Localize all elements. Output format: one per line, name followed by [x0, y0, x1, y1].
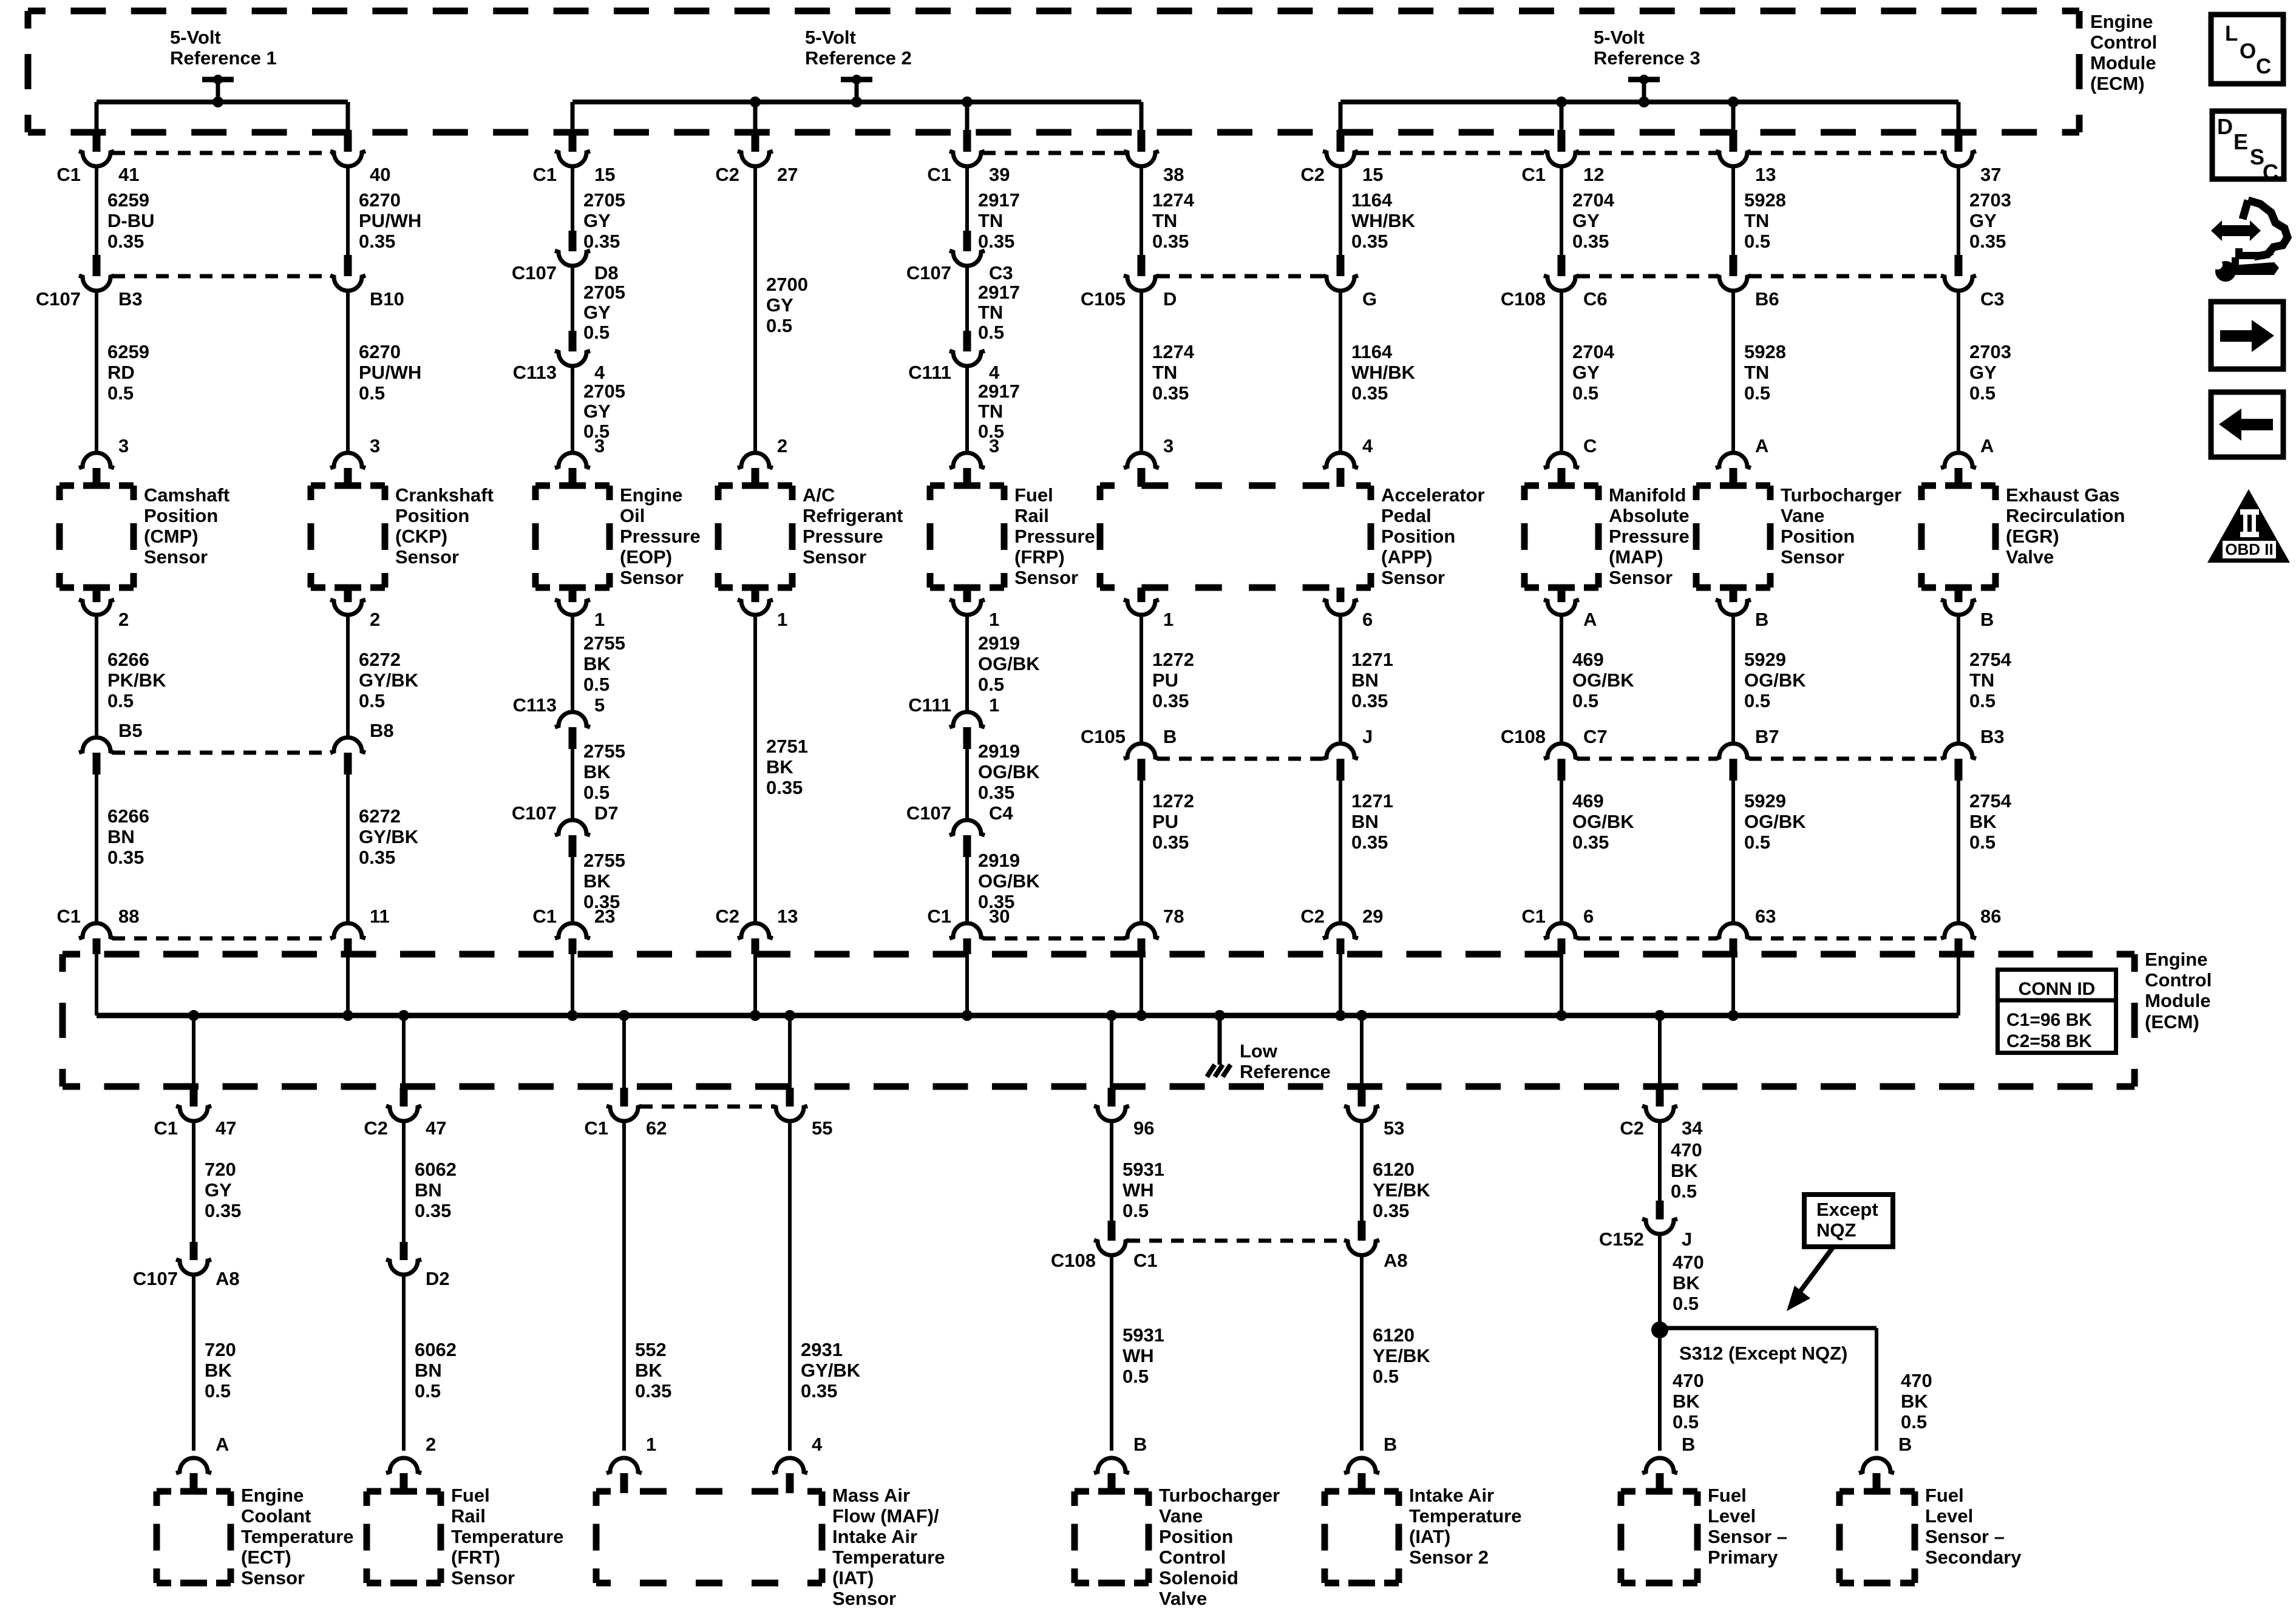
svg-text:6270: 6270: [359, 189, 401, 211]
svg-text:4: 4: [812, 1434, 823, 1455]
svg-text:0.35: 0.35: [1351, 231, 1388, 252]
svg-text:2755: 2755: [583, 632, 625, 654]
svg-text:C1: C1: [584, 1117, 608, 1139]
svg-text:BK: BK: [1901, 1391, 1928, 1412]
svg-text:GY/BK: GY/BK: [801, 1360, 861, 1381]
svg-text:C2: C2: [1300, 906, 1325, 927]
svg-text:C4: C4: [989, 802, 1013, 824]
svg-text:0.35: 0.35: [107, 231, 144, 252]
svg-text:0.35: 0.35: [978, 231, 1014, 252]
svg-text:J: J: [1682, 1229, 1692, 1250]
svg-text:720: 720: [205, 1159, 236, 1180]
svg-text:D7: D7: [594, 802, 619, 824]
svg-text:Control: Control: [2090, 32, 2157, 53]
svg-text:A: A: [1583, 609, 1597, 630]
svg-text:552: 552: [635, 1339, 667, 1360]
svg-text:0.5: 0.5: [1969, 690, 1995, 711]
svg-text:C2: C2: [1620, 1117, 1644, 1139]
svg-text:S312 (Except NQZ): S312 (Except NQZ): [1679, 1343, 1847, 1364]
svg-text:470: 470: [1671, 1139, 1702, 1161]
svg-text:5929: 5929: [1744, 649, 1786, 670]
svg-text:39: 39: [989, 164, 1010, 185]
svg-text:C152: C152: [1599, 1229, 1644, 1250]
svg-text:2: 2: [777, 435, 787, 456]
svg-text:5-Volt: 5-Volt: [170, 27, 221, 48]
svg-text:C107: C107: [906, 802, 951, 824]
svg-text:Sensor –: Sensor –: [1708, 1526, 1787, 1547]
svg-text:D: D: [1163, 288, 1177, 310]
svg-text:C113: C113: [513, 362, 557, 383]
svg-text:C1: C1: [532, 906, 557, 927]
svg-text:Turbocharger: Turbocharger: [1781, 484, 1901, 506]
svg-text:Sensor –: Sensor –: [1925, 1526, 2005, 1547]
svg-text:0.35: 0.35: [1572, 231, 1609, 252]
svg-text:C1: C1: [56, 906, 81, 927]
svg-text:Intake Air: Intake Air: [1409, 1485, 1494, 1506]
svg-text:2704: 2704: [1572, 341, 1615, 362]
svg-text:6270: 6270: [359, 341, 401, 362]
svg-text:2751: 2751: [766, 736, 808, 757]
svg-text:C108: C108: [1501, 726, 1546, 747]
svg-text:0.5: 0.5: [1373, 1366, 1399, 1387]
svg-text:Engine: Engine: [2090, 11, 2153, 32]
svg-text:3: 3: [989, 435, 999, 456]
svg-text:C7: C7: [1583, 726, 1608, 747]
svg-text:2931: 2931: [801, 1339, 843, 1360]
svg-text:B8: B8: [370, 720, 394, 741]
svg-text:3: 3: [118, 435, 129, 456]
svg-text:1164: 1164: [1351, 341, 1393, 362]
svg-text:Vane: Vane: [1159, 1505, 1203, 1527]
svg-text:Sensor: Sensor: [144, 546, 208, 568]
svg-text:A/C: A/C: [803, 484, 835, 506]
svg-text:B: B: [1898, 1434, 1912, 1455]
svg-text:0.35: 0.35: [766, 777, 803, 798]
svg-text:TN: TN: [1969, 670, 1994, 691]
svg-text:Valve: Valve: [2006, 546, 2054, 568]
svg-text:29: 29: [1362, 906, 1383, 927]
svg-text:0.35: 0.35: [359, 847, 395, 868]
svg-text:2703: 2703: [1969, 341, 2011, 362]
svg-text:C108: C108: [1501, 288, 1546, 310]
svg-text:Mass Air: Mass Air: [832, 1485, 910, 1506]
svg-text:C107: C107: [512, 262, 557, 283]
svg-text:0.5: 0.5: [1744, 382, 1770, 404]
svg-text:Solenoid: Solenoid: [1159, 1567, 1238, 1588]
svg-text:PK/BK: PK/BK: [107, 670, 166, 691]
svg-text:0.5: 0.5: [1744, 690, 1770, 711]
svg-text:B7: B7: [1755, 726, 1779, 747]
svg-text:4: 4: [989, 362, 1000, 383]
svg-text:2: 2: [118, 609, 129, 630]
svg-text:2700: 2700: [766, 274, 808, 295]
svg-text:5-Volt: 5-Volt: [1594, 27, 1645, 48]
svg-text:4: 4: [1362, 435, 1373, 456]
svg-text:470: 470: [1673, 1370, 1704, 1391]
svg-text:Level: Level: [1708, 1505, 1756, 1527]
svg-text:Sensor: Sensor: [1609, 567, 1673, 588]
svg-text:469: 469: [1572, 649, 1604, 670]
svg-text:Reference: Reference: [1240, 1061, 1331, 1082]
svg-text:Secondary: Secondary: [1925, 1547, 2022, 1568]
svg-text:(IAT): (IAT): [832, 1567, 874, 1588]
svg-text:0.35: 0.35: [1152, 832, 1189, 853]
svg-text:0.35: 0.35: [107, 847, 144, 868]
svg-text:30: 30: [989, 906, 1010, 927]
svg-text:0.5: 0.5: [1673, 1411, 1699, 1432]
svg-text:5931: 5931: [1123, 1324, 1164, 1346]
svg-text:D-BU: D-BU: [107, 210, 155, 231]
svg-text:Refrigerant: Refrigerant: [803, 505, 903, 526]
svg-text:1272: 1272: [1152, 790, 1194, 812]
svg-text:B: B: [1980, 609, 1994, 630]
svg-text:BK: BK: [1969, 811, 1997, 832]
svg-text:6: 6: [1583, 906, 1594, 927]
svg-text:Recirculation: Recirculation: [2006, 505, 2125, 526]
svg-text:C3: C3: [989, 262, 1013, 283]
svg-text:1: 1: [777, 609, 787, 630]
svg-text:C: C: [2263, 160, 2278, 185]
svg-text:(FRP): (FRP): [1014, 546, 1065, 568]
svg-text:Temperature: Temperature: [451, 1526, 564, 1547]
svg-text:(CKP): (CKP): [395, 526, 447, 547]
svg-text:Sensor: Sensor: [1014, 567, 1078, 588]
svg-text:0.35: 0.35: [1152, 231, 1189, 252]
svg-text:Pressure: Pressure: [1609, 526, 1690, 547]
svg-text:Temperature: Temperature: [832, 1547, 945, 1568]
svg-text:0.5: 0.5: [359, 382, 385, 404]
svg-text:5: 5: [594, 694, 605, 716]
svg-text:C1: C1: [927, 164, 951, 185]
svg-text:0.5: 0.5: [1671, 1181, 1697, 1202]
svg-text:2917: 2917: [978, 282, 1020, 303]
svg-text:G: G: [1362, 288, 1377, 310]
svg-text:Position: Position: [1781, 526, 1855, 547]
svg-text:Pressure: Pressure: [620, 526, 701, 547]
svg-text:1164: 1164: [1351, 189, 1393, 211]
svg-text:BK: BK: [1671, 1160, 1698, 1181]
svg-text:C2=58 BK: C2=58 BK: [2006, 1031, 2092, 1051]
svg-text:0.35: 0.35: [1351, 690, 1388, 711]
svg-text:0.5: 0.5: [583, 322, 610, 343]
svg-text:1: 1: [646, 1434, 656, 1455]
svg-text:C111: C111: [908, 694, 951, 716]
svg-text:C6: C6: [1583, 288, 1608, 310]
svg-text:720: 720: [205, 1339, 236, 1360]
svg-text:2: 2: [426, 1434, 436, 1455]
svg-text:Sensor: Sensor: [620, 567, 684, 588]
svg-text:1: 1: [594, 609, 605, 630]
svg-text:Pressure: Pressure: [1014, 526, 1095, 547]
svg-text:PU/WH: PU/WH: [359, 362, 421, 383]
svg-text:Fuel: Fuel: [1014, 484, 1053, 506]
svg-text:BK: BK: [635, 1360, 662, 1381]
svg-text:B10: B10: [370, 288, 404, 310]
svg-text:C107: C107: [906, 262, 951, 283]
svg-text:C113: C113: [513, 694, 557, 716]
svg-text:Pedal: Pedal: [1381, 505, 1432, 526]
svg-text:TN: TN: [978, 210, 1003, 231]
svg-text:O: O: [2240, 39, 2256, 63]
svg-text:B5: B5: [118, 720, 143, 741]
svg-text:0.5: 0.5: [359, 690, 385, 711]
svg-text:13: 13: [777, 906, 798, 927]
svg-text:0.35: 0.35: [583, 231, 620, 252]
svg-text:34: 34: [1682, 1117, 1703, 1139]
svg-text:BK: BK: [583, 761, 611, 782]
svg-text:0.5: 0.5: [1572, 690, 1598, 711]
svg-text:TN: TN: [1152, 210, 1177, 231]
svg-text:40: 40: [370, 164, 390, 185]
svg-text:5928: 5928: [1744, 189, 1786, 211]
svg-text:Control: Control: [1159, 1547, 1226, 1568]
svg-text:C111: C111: [908, 362, 951, 383]
svg-text:0.5: 0.5: [1744, 832, 1770, 853]
svg-text:Absolute: Absolute: [1609, 505, 1690, 526]
svg-text:BN: BN: [415, 1179, 442, 1201]
svg-text:0.5: 0.5: [1572, 382, 1598, 404]
svg-text:27: 27: [777, 164, 798, 185]
svg-text:Module: Module: [2145, 990, 2211, 1011]
svg-text:OG/BK: OG/BK: [978, 761, 1040, 782]
svg-text:TN: TN: [1744, 210, 1769, 231]
svg-text:C105: C105: [1081, 288, 1126, 310]
svg-text:Flow (MAF)/: Flow (MAF)/: [832, 1505, 939, 1527]
svg-text:2705: 2705: [583, 282, 625, 303]
svg-text:BN: BN: [1351, 811, 1379, 832]
svg-text:Crankshaft: Crankshaft: [395, 484, 494, 506]
svg-text:0.35: 0.35: [801, 1380, 837, 1402]
svg-text:BN: BN: [415, 1360, 442, 1381]
svg-text:GY/BK: GY/BK: [359, 670, 419, 691]
svg-text:2755: 2755: [583, 850, 625, 871]
svg-text:L: L: [2225, 22, 2238, 46]
svg-text:Control: Control: [2145, 969, 2212, 991]
svg-text:WH/BK: WH/BK: [1351, 362, 1416, 383]
svg-text:Manifold: Manifold: [1609, 484, 1686, 506]
svg-text:5928: 5928: [1744, 341, 1786, 362]
svg-text:6120: 6120: [1373, 1324, 1415, 1346]
svg-text:BK: BK: [1673, 1272, 1700, 1293]
svg-text:GY/BK: GY/BK: [359, 826, 419, 847]
svg-text:0.35: 0.35: [415, 1200, 451, 1221]
svg-text:Sensor: Sensor: [832, 1588, 896, 1609]
svg-text:Module: Module: [2090, 52, 2156, 73]
svg-text:Level: Level: [1925, 1505, 1973, 1527]
svg-text:BK: BK: [766, 756, 793, 778]
svg-text:Accelerator: Accelerator: [1381, 484, 1485, 506]
svg-text:6062: 6062: [415, 1159, 457, 1180]
svg-text:15: 15: [594, 164, 615, 185]
svg-text:96: 96: [1133, 1117, 1154, 1139]
svg-text:(FRT): (FRT): [451, 1547, 500, 1568]
svg-text:55: 55: [812, 1117, 832, 1139]
svg-text:OBD II: OBD II: [2225, 540, 2273, 558]
svg-text:47: 47: [426, 1117, 446, 1139]
svg-text:Oil: Oil: [620, 505, 645, 526]
svg-text:1274: 1274: [1152, 189, 1195, 211]
svg-text:2755: 2755: [583, 741, 625, 762]
svg-text:1274: 1274: [1152, 341, 1195, 362]
svg-text:0.5: 0.5: [978, 674, 1004, 695]
svg-text:2919: 2919: [978, 850, 1020, 871]
svg-text:0.5: 0.5: [205, 1380, 231, 1402]
svg-text:(MAP): (MAP): [1609, 546, 1663, 568]
svg-text:C1=96 BK: C1=96 BK: [2006, 1010, 2092, 1030]
svg-text:(IAT): (IAT): [1409, 1526, 1450, 1547]
svg-text:0.5: 0.5: [1744, 231, 1770, 252]
svg-text:D: D: [2217, 114, 2233, 139]
svg-text:WH/BK: WH/BK: [1351, 210, 1416, 231]
svg-text:CONN ID: CONN ID: [2019, 979, 2096, 999]
svg-text:15: 15: [1362, 164, 1383, 185]
svg-text:0.5: 0.5: [415, 1380, 441, 1402]
svg-text:6266: 6266: [107, 805, 149, 827]
svg-text:A: A: [216, 1434, 229, 1455]
svg-text:0.35: 0.35: [359, 231, 395, 252]
svg-text:37: 37: [1980, 164, 2001, 185]
svg-text:BK: BK: [583, 870, 611, 892]
svg-text:E: E: [2233, 129, 2248, 154]
svg-text:1: 1: [1163, 609, 1173, 630]
svg-text:2917: 2917: [978, 189, 1020, 211]
svg-text:0.35: 0.35: [978, 782, 1014, 803]
svg-text:Reference 2: Reference 2: [805, 47, 912, 69]
svg-text:Camshaft: Camshaft: [144, 484, 229, 506]
svg-text:Fuel: Fuel: [1708, 1485, 1747, 1506]
svg-text:WH: WH: [1123, 1345, 1154, 1366]
svg-text:13: 13: [1755, 164, 1776, 185]
svg-text:6: 6: [1362, 609, 1373, 630]
svg-text:5929: 5929: [1744, 790, 1786, 812]
svg-text:3: 3: [370, 435, 380, 456]
svg-text:Primary: Primary: [1708, 1547, 1778, 1568]
svg-text:4: 4: [594, 362, 605, 383]
svg-text:0.35: 0.35: [1572, 832, 1609, 853]
svg-text:(EGR): (EGR): [2006, 526, 2059, 547]
svg-text:GY: GY: [1572, 362, 1600, 383]
svg-text:2705: 2705: [583, 381, 625, 402]
svg-text:Position: Position: [1381, 526, 1455, 547]
svg-text:B3: B3: [1980, 726, 2005, 747]
svg-text:TN: TN: [978, 401, 1003, 422]
svg-text:GY: GY: [583, 302, 611, 323]
svg-text:A: A: [1755, 435, 1768, 456]
svg-text:0.5: 0.5: [107, 690, 134, 711]
svg-text:C1: C1: [56, 164, 81, 185]
svg-text:1271: 1271: [1351, 790, 1393, 812]
svg-text:2919: 2919: [978, 741, 1020, 762]
svg-text:A8: A8: [1384, 1250, 1408, 1271]
svg-text:A8: A8: [216, 1268, 240, 1289]
svg-text:1: 1: [989, 694, 999, 716]
svg-text:BN: BN: [107, 826, 135, 847]
svg-text:0.5: 0.5: [583, 674, 610, 695]
svg-text:6062: 6062: [415, 1339, 457, 1360]
svg-text:YE/BK: YE/BK: [1373, 1345, 1430, 1366]
svg-text:2704: 2704: [1572, 189, 1615, 211]
svg-text:TN: TN: [1152, 362, 1177, 383]
svg-text:Sensor: Sensor: [1781, 546, 1844, 568]
svg-text:PU/WH: PU/WH: [359, 210, 421, 231]
svg-text:(EOP): (EOP): [620, 546, 672, 568]
svg-text:Reference 3: Reference 3: [1594, 47, 1700, 69]
svg-text:C2: C2: [1300, 164, 1325, 185]
svg-text:C1: C1: [532, 164, 557, 185]
svg-text:C108: C108: [1051, 1250, 1096, 1271]
svg-text:470: 470: [1673, 1252, 1704, 1273]
svg-text:2754: 2754: [1969, 649, 2012, 670]
svg-text:B: B: [1163, 726, 1177, 747]
svg-text:OG/BK: OG/BK: [978, 653, 1040, 674]
svg-text:0.35: 0.35: [1351, 832, 1388, 853]
svg-text:(ECT): (ECT): [241, 1547, 291, 1568]
svg-text:B: B: [1755, 609, 1768, 630]
svg-text:OG/BK: OG/BK: [1572, 811, 1634, 832]
svg-text:0.5: 0.5: [1123, 1200, 1149, 1221]
svg-text:C1: C1: [1521, 906, 1546, 927]
svg-text:3: 3: [1163, 435, 1173, 456]
svg-text:0.35: 0.35: [205, 1200, 241, 1221]
svg-text:PU: PU: [1152, 811, 1178, 832]
svg-text:41: 41: [118, 164, 139, 185]
svg-text:Intake Air: Intake Air: [832, 1526, 917, 1547]
svg-text:Reference 1: Reference 1: [170, 47, 277, 69]
svg-text:(ECM): (ECM): [2090, 73, 2145, 94]
svg-text:6266: 6266: [107, 649, 149, 670]
svg-text:0.5: 0.5: [583, 782, 610, 803]
svg-text:2: 2: [370, 609, 380, 630]
svg-text:Rail: Rail: [451, 1505, 486, 1527]
svg-text:A: A: [1980, 435, 1994, 456]
svg-text:0.35: 0.35: [1373, 1200, 1409, 1221]
svg-text:2917: 2917: [978, 381, 1020, 402]
svg-text:0.5: 0.5: [1673, 1293, 1699, 1314]
svg-text:Sensor 2: Sensor 2: [1409, 1547, 1489, 1568]
svg-text:Vane: Vane: [1781, 505, 1824, 526]
svg-text:D8: D8: [594, 262, 619, 283]
svg-text:C107: C107: [512, 802, 557, 824]
svg-text:GY: GY: [766, 294, 793, 316]
svg-text:Position: Position: [144, 505, 218, 526]
svg-text:470: 470: [1901, 1370, 1932, 1391]
svg-text:23: 23: [594, 906, 615, 927]
svg-text:C: C: [2256, 55, 2271, 78]
svg-text:B: B: [1384, 1434, 1397, 1455]
svg-text:0.35: 0.35: [1152, 382, 1189, 404]
svg-text:C: C: [1583, 435, 1597, 456]
svg-text:YE/BK: YE/BK: [1373, 1179, 1430, 1201]
svg-text:GY: GY: [1969, 362, 1997, 383]
svg-text:C1: C1: [1521, 164, 1546, 185]
svg-text:0.35: 0.35: [1152, 690, 1189, 711]
svg-text:BK: BK: [583, 653, 611, 674]
svg-text:TN: TN: [978, 302, 1003, 323]
svg-text:2705: 2705: [583, 189, 625, 211]
svg-text:C3: C3: [1980, 288, 2005, 310]
svg-text:Temperature: Temperature: [241, 1526, 354, 1547]
svg-text:Engine: Engine: [2145, 949, 2207, 970]
svg-text:NQZ: NQZ: [1816, 1219, 1856, 1241]
svg-text:C2: C2: [364, 1117, 388, 1139]
svg-text:GY: GY: [1969, 210, 1997, 231]
svg-text:3: 3: [594, 435, 605, 456]
svg-text:1272: 1272: [1152, 649, 1194, 670]
svg-text:Position: Position: [395, 505, 469, 526]
svg-text:86: 86: [1980, 906, 2001, 927]
svg-text:C2: C2: [715, 906, 739, 927]
svg-text:0.35: 0.35: [1969, 231, 2006, 252]
